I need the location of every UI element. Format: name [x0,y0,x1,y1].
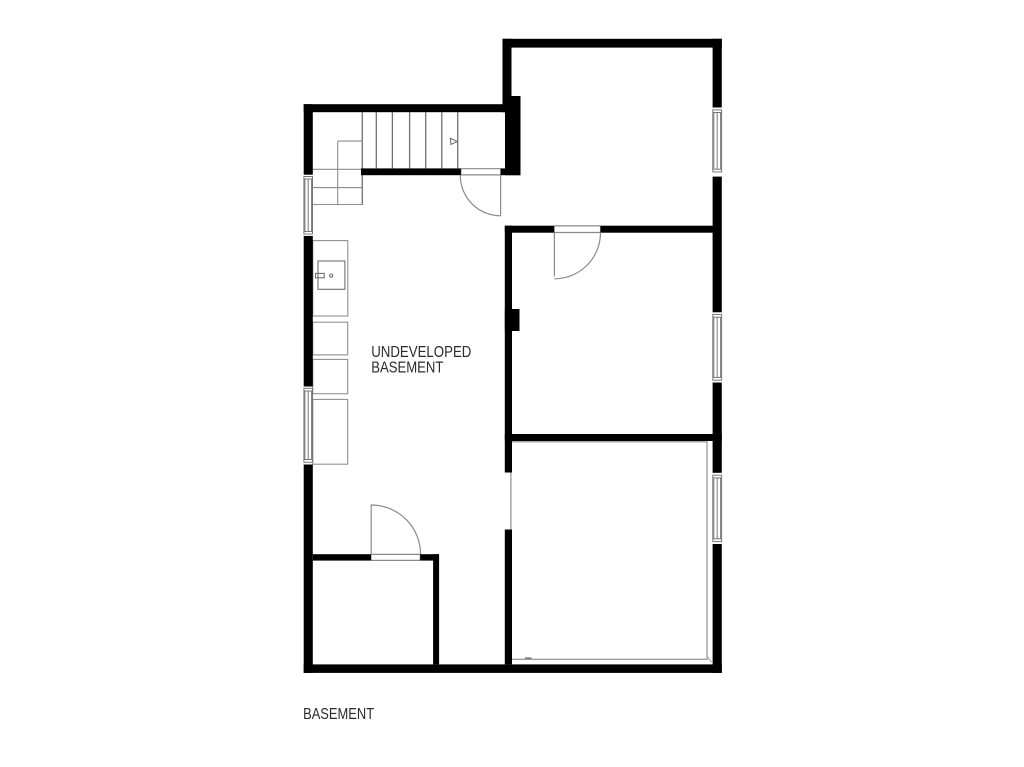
svg-text:BASEMENT: BASEMENT [371,359,444,376]
svg-text:BASEMENT: BASEMENT [303,706,374,723]
